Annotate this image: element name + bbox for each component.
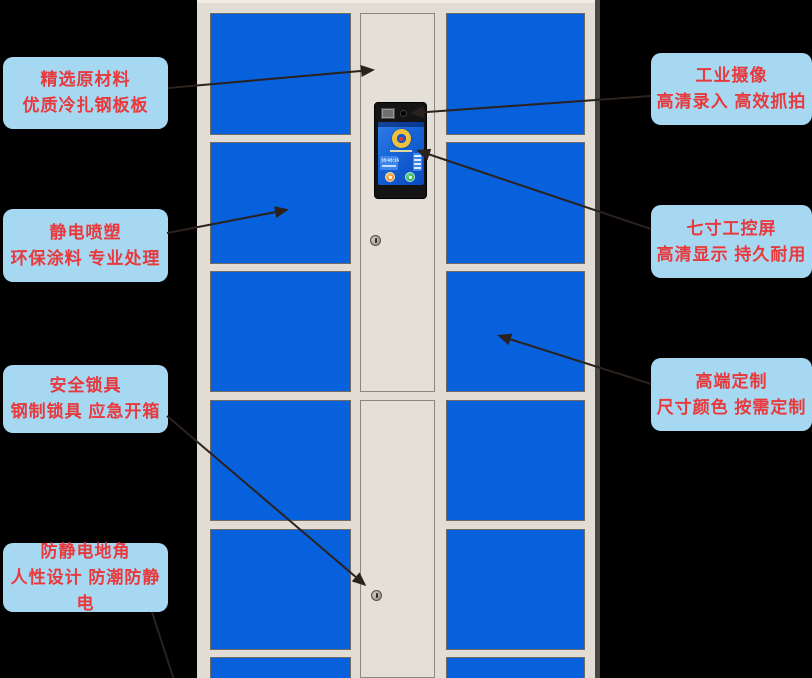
locker-door xyxy=(210,529,351,650)
callout-camera: 工业摄像 高清录入 高效抓拍 xyxy=(651,53,812,125)
callout-lock: 安全锁具 钢制锁具 应急开箱 xyxy=(3,365,168,433)
locker-door xyxy=(210,13,351,135)
screen-topbar xyxy=(378,122,424,127)
screen-caption-line xyxy=(390,150,412,152)
card-reader xyxy=(381,108,395,119)
callout-antistatic-feet: 防静电地角 人性设计 防潮防静电 xyxy=(3,543,168,612)
center-control-column-lower xyxy=(360,400,435,678)
screen-date-line xyxy=(382,165,396,167)
keyhole-lower xyxy=(371,590,382,601)
callout-title: 安全锁具 xyxy=(50,373,122,399)
locker-door xyxy=(210,271,351,392)
callout-subtitle: 优质冷扎钢板板 xyxy=(23,93,149,119)
locker-door xyxy=(446,529,585,650)
screen-info-box xyxy=(413,153,422,171)
callout-custom: 高端定制 尺寸颜色 按需定制 xyxy=(651,358,812,431)
locker-door xyxy=(446,271,585,392)
locker-door xyxy=(446,13,585,135)
green-action-icon xyxy=(405,172,415,182)
callout-title: 静电喷塑 xyxy=(50,220,122,246)
locker-door xyxy=(446,657,585,678)
callout-title: 七寸工控屏 xyxy=(687,216,777,242)
arrow-antistatic-feet xyxy=(152,612,174,678)
touch-screen: 15:43:15 xyxy=(378,122,424,185)
police-badge-icon xyxy=(392,129,411,148)
callout-subtitle: 高清显示 持久耐用 xyxy=(657,242,807,268)
callout-screen: 七寸工控屏 高清显示 持久耐用 xyxy=(651,205,812,278)
locker-door xyxy=(446,142,585,264)
callout-subtitle: 人性设计 防潮防静电 xyxy=(3,565,168,617)
cabinet-side-shadow xyxy=(595,0,600,678)
callout-title: 高端定制 xyxy=(696,369,768,395)
locker-door xyxy=(210,142,351,264)
callout-title: 工业摄像 xyxy=(696,63,768,89)
callout-subtitle: 钢制锁具 应急开箱 xyxy=(11,399,161,425)
product-diagram: 15:43:15 精选原材料 优质冷扎钢板板 静电喷塑 环保涂料 专业处理 安全… xyxy=(0,0,812,678)
locker-door xyxy=(210,657,351,678)
cabinet-top-edge xyxy=(197,0,600,3)
center-control-column-upper xyxy=(360,13,435,392)
callout-materials: 精选原材料 优质冷扎钢板板 xyxy=(3,57,168,129)
keyhole-upper xyxy=(370,235,381,246)
control-panel: 15:43:15 xyxy=(374,102,427,199)
orange-action-icon xyxy=(385,172,395,182)
locker-door xyxy=(446,400,585,521)
callout-title: 防静电地角 xyxy=(41,539,131,565)
screen-time-box: 15:43:15 xyxy=(380,156,398,170)
callout-subtitle: 尺寸颜色 按需定制 xyxy=(657,395,807,421)
callout-subtitle: 环保涂料 专业处理 xyxy=(11,246,161,272)
callout-coating: 静电喷塑 环保涂料 专业处理 xyxy=(3,209,168,282)
screen-time: 15:43:15 xyxy=(381,158,397,163)
callout-subtitle: 高清录入 高效抓拍 xyxy=(657,89,807,115)
callout-title: 精选原材料 xyxy=(41,67,131,93)
camera-icon xyxy=(400,110,407,117)
locker-door xyxy=(210,400,351,521)
